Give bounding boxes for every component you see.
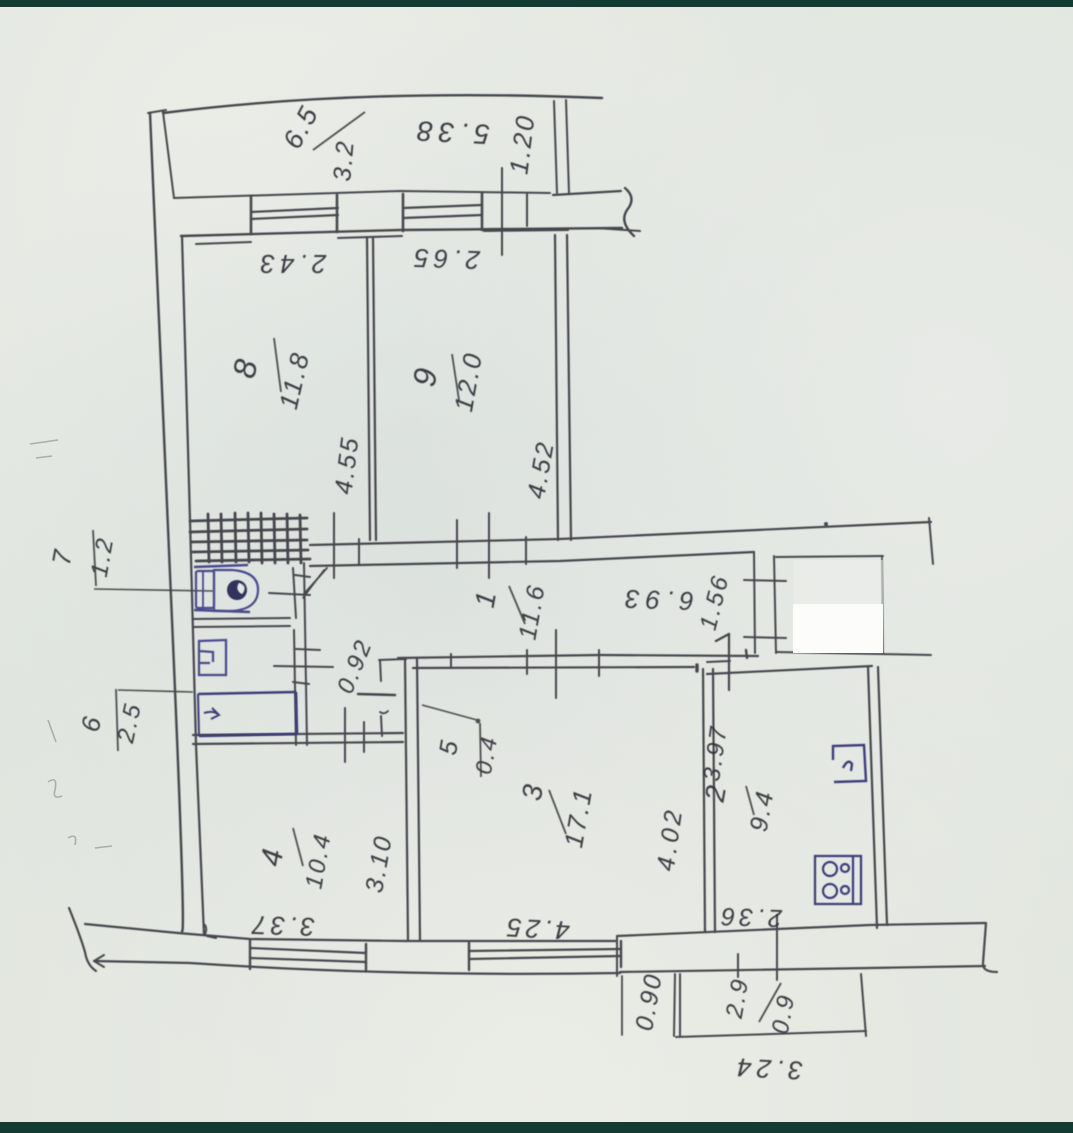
svg-text:3.24: 3.24 xyxy=(731,1052,803,1086)
svg-text:2.65: 2.65 xyxy=(409,243,482,275)
svg-text:3.37: 3.37 xyxy=(248,910,316,942)
svg-text:3.2: 3.2 xyxy=(328,138,360,183)
svg-text:5.38: 5.38 xyxy=(410,115,490,150)
svg-text:2.43: 2.43 xyxy=(256,249,328,279)
svg-text:2.36: 2.36 xyxy=(717,902,784,932)
svg-text:4.25: 4.25 xyxy=(502,912,570,945)
svg-text:6.93: 6.93 xyxy=(619,584,695,617)
